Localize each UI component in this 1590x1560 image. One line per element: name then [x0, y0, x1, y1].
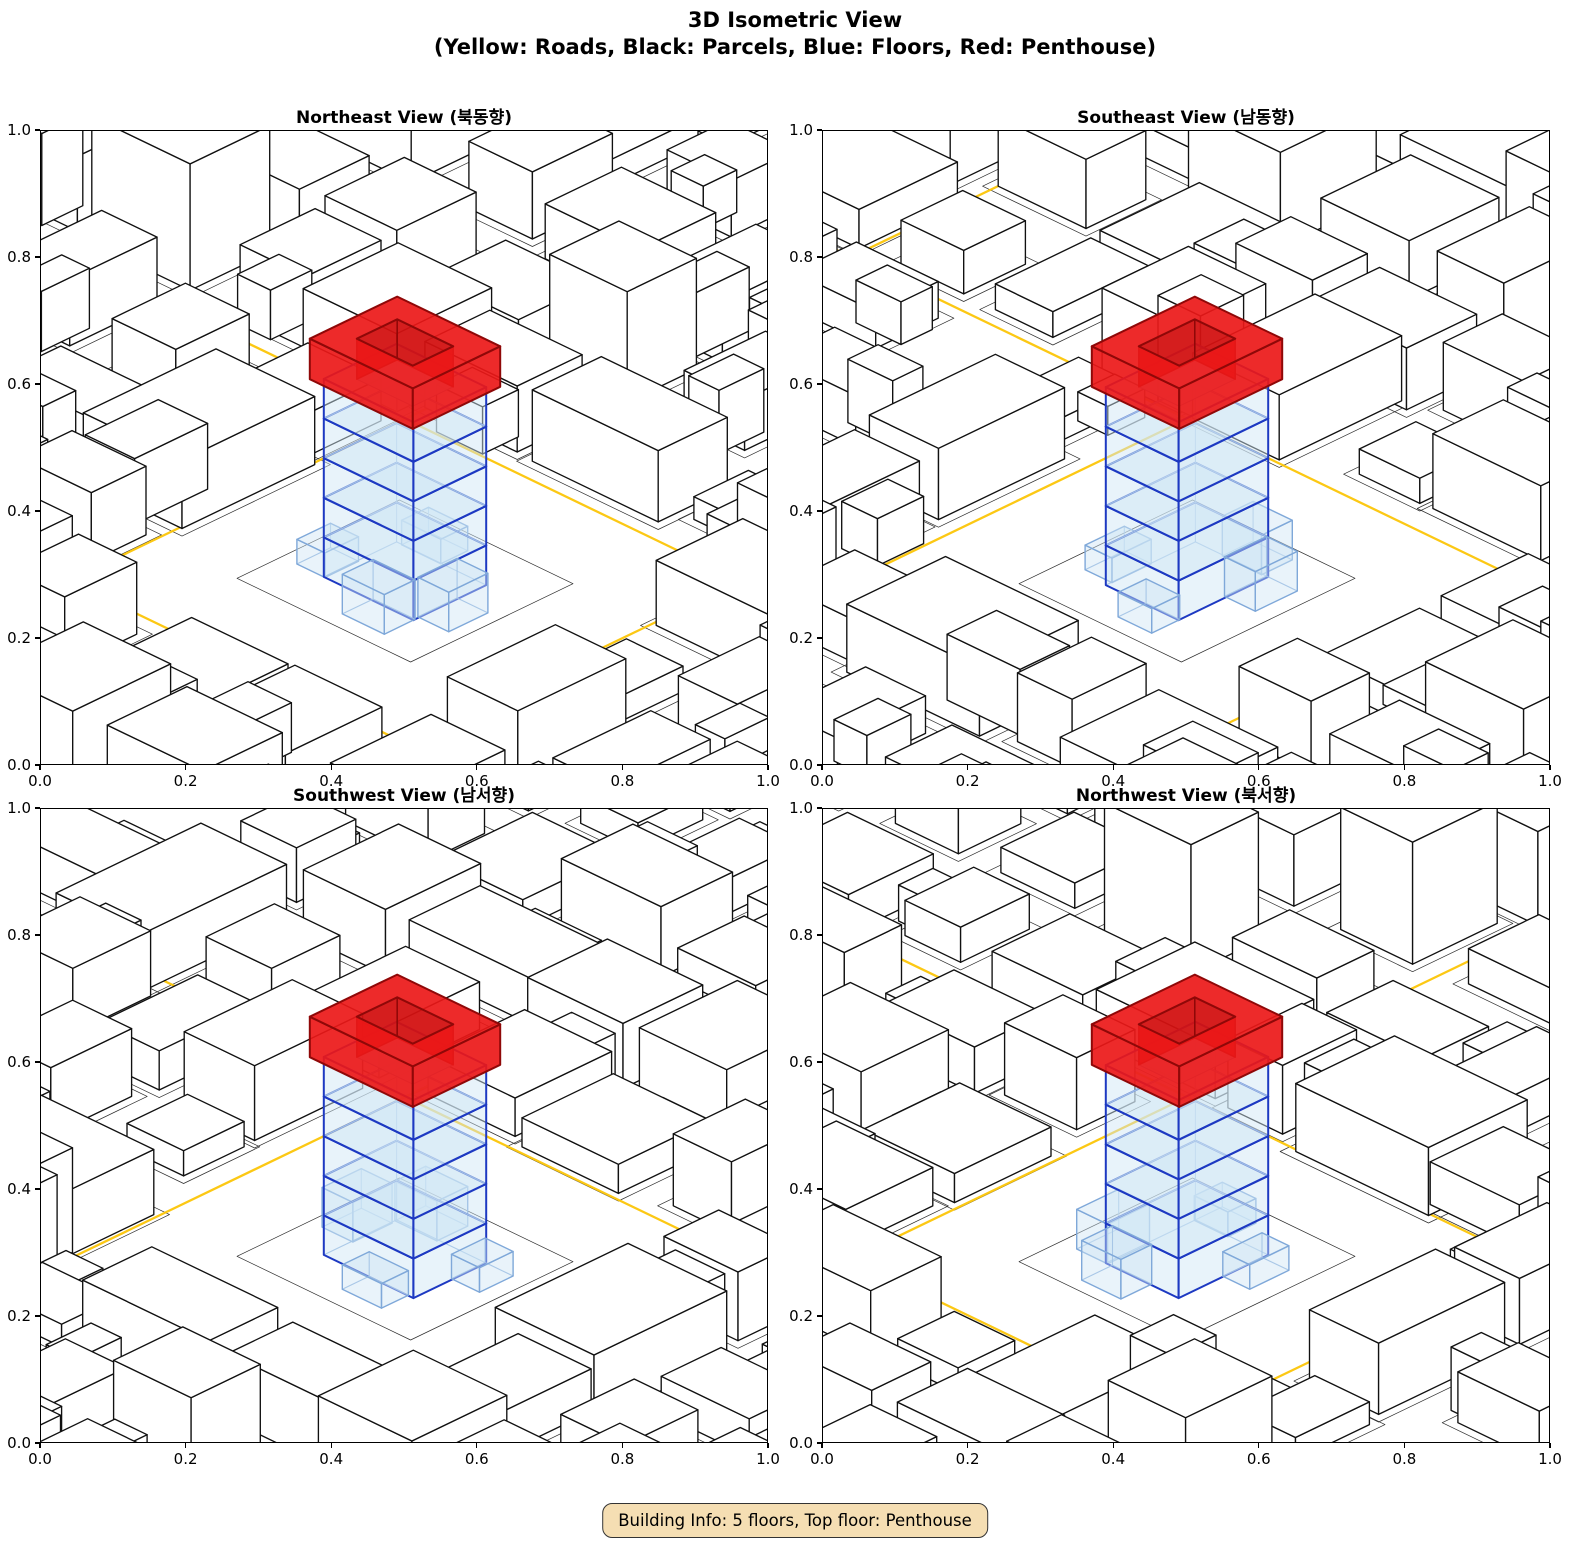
y-tick-label: 0.6 — [789, 375, 813, 393]
y-tick-label: 0.2 — [789, 1307, 813, 1325]
subplot-title-southeast: Southeast View (남동향) — [822, 103, 1550, 128]
y-tick-label: 0.8 — [789, 248, 813, 266]
subplot-title-northwest: Northwest View (북서향) — [822, 781, 1550, 806]
x-tick-label: 1.0 — [756, 1450, 780, 1468]
building-info-box: Building Info: 5 floors, Top floor: Pent… — [602, 1503, 988, 1538]
y-tick-mark — [35, 934, 40, 935]
x-tick-mark — [185, 1443, 186, 1448]
y-tick-mark — [817, 383, 822, 384]
x-tick-mark — [767, 765, 768, 770]
x-tick-label: 0.0 — [810, 1450, 834, 1468]
y-tick-label: 0.0 — [7, 756, 31, 774]
subplot-southwest: Southwest View (남서향) 0.00.00.20.20.40.40… — [40, 808, 768, 1443]
buildings-layer — [823, 809, 1550, 1443]
x-tick-mark — [1113, 1443, 1114, 1448]
x-tick-label: 0.8 — [610, 1450, 634, 1468]
x-tick-label: 0.0 — [28, 1450, 52, 1468]
figure-title-line2: (Yellow: Roads, Black: Parcels, Blue: Fl… — [0, 34, 1590, 61]
y-tick-label: 0.6 — [789, 1053, 813, 1071]
x-tick-label: 1.0 — [1538, 1450, 1562, 1468]
y-tick-label: 0.2 — [7, 1307, 31, 1325]
y-tick-mark — [35, 1061, 40, 1062]
y-tick-mark — [817, 637, 822, 638]
y-tick-mark — [817, 807, 822, 808]
y-tick-label: 0.2 — [7, 629, 31, 647]
y-tick-mark — [817, 764, 822, 765]
y-tick-label: 0.6 — [7, 375, 31, 393]
y-tick-mark — [35, 256, 40, 257]
x-tick-mark — [185, 765, 186, 770]
y-tick-mark — [817, 934, 822, 935]
y-tick-mark — [817, 1442, 822, 1443]
x-tick-mark — [622, 1443, 623, 1448]
buildings-layer — [41, 131, 768, 765]
figure-title-line1: 3D Isometric View — [0, 7, 1590, 34]
x-tick-mark — [1258, 1443, 1259, 1448]
x-tick-mark — [1549, 1443, 1550, 1448]
buildings-layer — [41, 809, 768, 1443]
y-tick-mark — [35, 637, 40, 638]
plot-area-northwest — [822, 808, 1550, 1443]
y-tick-mark — [35, 1315, 40, 1316]
subplot-northwest: Northwest View (북서향) 0.00.00.20.20.40.40… — [822, 808, 1550, 1443]
x-tick-mark — [767, 1443, 768, 1448]
y-tick-label: 0.8 — [7, 248, 31, 266]
y-tick-label: 1.0 — [789, 121, 813, 139]
scene-northeast — [41, 131, 768, 765]
y-tick-mark — [35, 383, 40, 384]
x-tick-label: 0.8 — [1392, 1450, 1416, 1468]
subplot-title-southwest: Southwest View (남서향) — [40, 781, 768, 806]
y-tick-label: 1.0 — [789, 799, 813, 817]
y-tick-label: 0.4 — [7, 502, 31, 520]
plot-area-southeast — [822, 130, 1550, 765]
x-tick-mark — [821, 765, 822, 770]
y-tick-mark — [35, 510, 40, 511]
x-tick-mark — [39, 765, 40, 770]
y-tick-mark — [35, 764, 40, 765]
x-tick-mark — [476, 1443, 477, 1448]
x-tick-mark — [967, 765, 968, 770]
x-tick-label: 0.2 — [956, 1450, 980, 1468]
x-tick-mark — [331, 1443, 332, 1448]
x-tick-label: 0.6 — [465, 1450, 489, 1468]
y-tick-label: 0.0 — [7, 1434, 31, 1452]
y-tick-label: 1.0 — [7, 121, 31, 139]
x-tick-mark — [1549, 765, 1550, 770]
scene-southwest — [41, 809, 768, 1443]
y-tick-label: 1.0 — [7, 799, 31, 817]
x-tick-mark — [821, 1443, 822, 1448]
scene-northwest — [823, 809, 1550, 1443]
y-tick-label: 0.4 — [789, 1180, 813, 1198]
y-tick-mark — [35, 807, 40, 808]
x-tick-mark — [1404, 765, 1405, 770]
y-tick-mark — [35, 1442, 40, 1443]
y-tick-label: 0.4 — [7, 1180, 31, 1198]
y-tick-mark — [817, 1188, 822, 1189]
x-tick-mark — [622, 765, 623, 770]
x-tick-mark — [1113, 765, 1114, 770]
y-tick-label: 0.0 — [789, 756, 813, 774]
x-tick-mark — [1404, 1443, 1405, 1448]
x-tick-label: 0.4 — [1101, 1450, 1125, 1468]
y-tick-label: 0.4 — [789, 502, 813, 520]
subplot-northeast: Northeast View (북동향) 0.00.00.20.20.40.40… — [40, 130, 768, 765]
scene-southeast — [823, 131, 1550, 765]
y-tick-mark — [817, 129, 822, 130]
buildings-layer — [823, 131, 1550, 765]
subplot-title-northeast: Northeast View (북동향) — [40, 103, 768, 128]
x-tick-label: 0.2 — [174, 1450, 198, 1468]
x-tick-mark — [476, 765, 477, 770]
y-tick-label: 0.0 — [789, 1434, 813, 1452]
x-tick-mark — [39, 1443, 40, 1448]
y-tick-label: 0.2 — [789, 629, 813, 647]
x-tick-label: 0.6 — [1247, 1450, 1271, 1468]
x-tick-mark — [331, 765, 332, 770]
plot-area-northeast — [40, 130, 768, 765]
y-tick-label: 0.8 — [789, 926, 813, 944]
y-tick-label: 0.6 — [7, 1053, 31, 1071]
figure-title: 3D Isometric View (Yellow: Roads, Black:… — [0, 7, 1590, 61]
y-tick-mark — [817, 1061, 822, 1062]
y-tick-mark — [817, 510, 822, 511]
y-tick-mark — [817, 1315, 822, 1316]
x-tick-mark — [1258, 765, 1259, 770]
x-tick-mark — [967, 1443, 968, 1448]
y-tick-label: 0.8 — [7, 926, 31, 944]
y-tick-mark — [35, 129, 40, 130]
y-tick-mark — [35, 1188, 40, 1189]
plot-area-southwest — [40, 808, 768, 1443]
x-tick-label: 0.4 — [319, 1450, 343, 1468]
y-tick-mark — [817, 256, 822, 257]
subplot-southeast: Southeast View (남동향) 0.00.00.20.20.40.40… — [822, 130, 1550, 765]
